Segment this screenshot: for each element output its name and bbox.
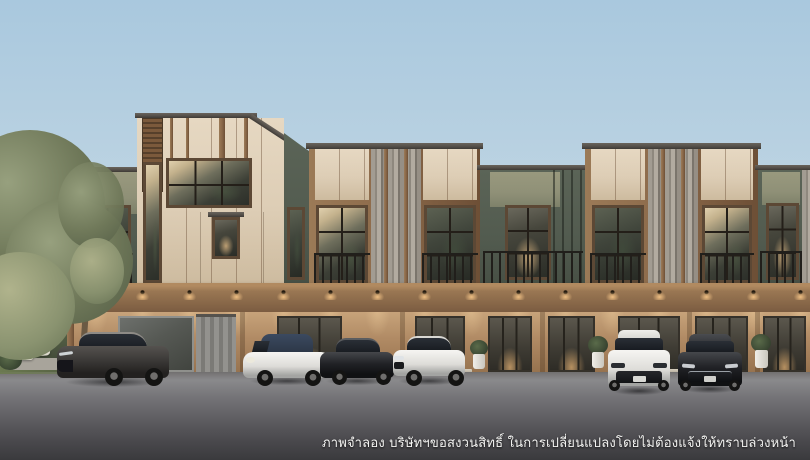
facade-slat [186,118,189,160]
stone-feature-strip [648,149,698,285]
wheel [376,370,391,385]
tower-small-window [212,217,240,259]
planter-pot [755,350,768,368]
stone-slat [661,149,665,285]
cream-shade-panel [423,149,477,200]
juliet-railing [590,253,646,283]
glass-door-bay [488,316,532,372]
stone-edge-strip [802,170,810,285]
stone-slat [681,149,685,285]
kidney-grille [394,362,404,369]
wheel [305,370,321,386]
olive-panel [762,172,800,205]
juliet-railing [314,253,370,283]
sedan-black [320,338,394,386]
sedan-white [393,334,465,386]
sedan-dark-front-view [678,334,742,394]
sedan-white-front-view [608,330,670,396]
planter-pot [592,352,604,368]
wheel [332,370,347,385]
wheel [609,380,620,391]
facade-slat [170,118,173,160]
suv-dark-gray [57,330,169,388]
cream-shade-panel [701,149,753,200]
disclaimer-text: ภาพจำลอง บริษัทฯขอสงวนสิทธิ์ ในการเปลี่ย… [322,432,796,453]
garage-slat-door [196,314,236,372]
wheel [145,368,163,386]
planter-pot [473,354,485,369]
wheel [448,370,464,386]
convertible-white-navy-top [243,334,331,386]
cream-shade-panel [315,149,369,200]
wheel [680,380,691,391]
downlight-row [72,288,810,300]
panel-seam [263,212,264,285]
front-grille [57,360,73,372]
wheel [257,370,273,386]
olive-panel [490,172,560,207]
facade-slat [244,118,248,160]
stone-slat [404,149,408,285]
headlight [246,357,255,363]
tower-picture-window [166,158,252,208]
headlight [682,364,695,369]
stone-slat [384,149,388,285]
headlight [653,363,667,368]
license-plate [704,376,716,382]
juliet-railing [700,253,754,283]
tower-tall-window [143,162,162,283]
tree-canopy [58,162,124,248]
juliet-railing [422,253,478,283]
wheel [658,380,669,391]
headlight [611,363,625,368]
cream-shade-panel [591,149,645,200]
wheel [105,368,123,386]
wheel [406,370,422,386]
facade-slat [219,118,225,160]
license-plate [633,376,646,382]
wheel [729,380,740,391]
recess-window [287,207,305,280]
townhome-rendering: ภาพจำลอง บริษัทฯขอสงวนสิทธิ์ ในการเปลี่ย… [0,0,810,460]
balcony-railing [760,251,805,283]
stone-feature-strip [371,149,421,285]
tree-canopy [70,238,124,304]
balcony-railing [483,251,583,283]
party-wall-shadow [540,312,545,372]
panel-seam [200,212,201,285]
headlight [394,356,404,360]
